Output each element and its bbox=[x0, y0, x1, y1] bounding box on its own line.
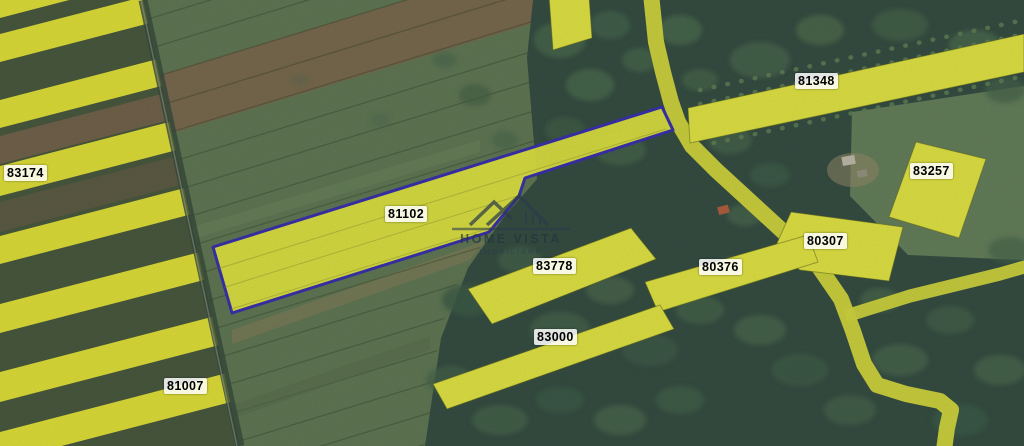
watermark-brand: HOME VISTA bbox=[460, 232, 562, 246]
parcel-label-83174: 83174 bbox=[4, 165, 47, 181]
watermark-tagline: IMOBILIARE bbox=[480, 247, 543, 256]
parcel-label-80376: 80376 bbox=[699, 259, 742, 275]
parcel-label-83778: 83778 bbox=[533, 258, 576, 274]
parcel-label-81007: 81007 bbox=[164, 378, 207, 394]
parcel-label-81102: 81102 bbox=[385, 206, 427, 222]
map-canvas: HOME VISTA IMOBILIARE 83174 81102 81348 … bbox=[0, 0, 1024, 446]
parcel-label-80307: 80307 bbox=[804, 233, 847, 249]
parcel-label-83000: 83000 bbox=[534, 329, 577, 345]
parcel-label-81348: 81348 bbox=[795, 73, 838, 89]
parcel-label-83257: 83257 bbox=[910, 163, 953, 179]
aerial-map-svg: HOME VISTA IMOBILIARE bbox=[0, 0, 1024, 446]
photo-grain-overlay bbox=[0, 0, 1024, 446]
